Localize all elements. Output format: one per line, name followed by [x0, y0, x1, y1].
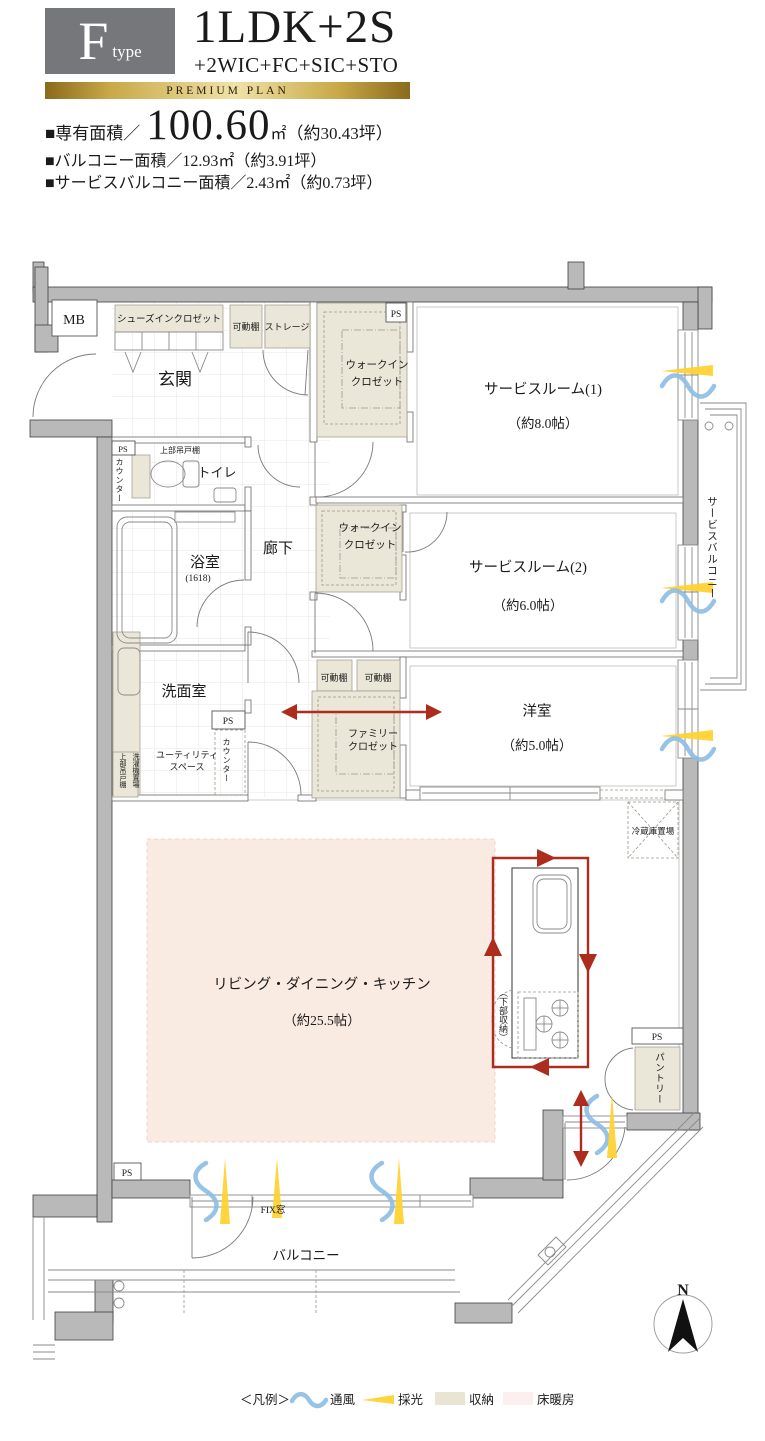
fridge-place-label: 冷蔵庫置場 [632, 826, 675, 836]
utility-space-label: スペース [170, 762, 205, 772]
pantry-door-upper [605, 1048, 633, 1079]
walk-in-closet-1-label: クロゼット [351, 376, 404, 388]
corridor-label: 廊下 [263, 540, 293, 557]
walk-in-closet-2-label: クロゼット [344, 539, 397, 551]
washroom-label: 洗面室 [161, 683, 206, 700]
service-room-2-outline [410, 513, 676, 648]
toilet-label: トイレ [197, 465, 236, 480]
storage-label: ストレージ [265, 322, 310, 332]
pantry-door-lower [605, 1079, 633, 1110]
legend-storage-label: 収納 [469, 1393, 494, 1407]
toilet-counter-area [132, 455, 150, 498]
north-compass: N [654, 1282, 712, 1353]
floor-heating-swatch [503, 1392, 533, 1405]
walk-in-closet-2-door [405, 512, 447, 552]
fix-window-label: FIX窓 [261, 1204, 286, 1216]
western-room-label: 洋室 [523, 703, 552, 720]
ventilation-icon [372, 1163, 393, 1220]
upper-cabinet-label: 上部吊戸棚 [160, 445, 200, 455]
north-arrow-icon [668, 1299, 698, 1352]
ventilation-icon [292, 1394, 326, 1406]
walk-in-closet-2-label: ウォークイン [339, 522, 402, 534]
balcony-label: バルコニー [272, 1248, 339, 1263]
ps-label: PS [122, 1169, 133, 1179]
western-room-outline [410, 666, 676, 786]
counter-label-wash: カウンター [221, 738, 232, 783]
bath-floor [112, 511, 245, 645]
western-room-size: （約5.0帖） [502, 738, 573, 753]
upper-cabinet-label-wash: 上部吊戸棚 [118, 753, 128, 788]
ps-label: PS [118, 444, 128, 454]
service-room-1-size: （約8.0帖） [508, 416, 579, 431]
washer-place-label: 洗濯機置場 [131, 753, 141, 788]
service-balcony-label: サービスバルコニー [704, 496, 719, 600]
family-closet-label: ファミリー [348, 729, 398, 740]
legend-title: ＜凡例＞ [240, 1393, 290, 1407]
legend-daylight-label: 採光 [398, 1393, 423, 1407]
under-storage-label: （下部収納） [497, 988, 510, 1042]
mb-label: MB [63, 313, 85, 328]
pantry-label: パントリー [651, 1052, 665, 1105]
bath-size-label: (1618) [185, 573, 210, 584]
floor-plan-drawing: MB PS PS PS PS PS [0, 0, 765, 1441]
ps-label: PS [652, 1033, 663, 1043]
service-room-1-label: サービスルーム(1) [484, 381, 602, 398]
movable-shelf-label: 可動棚 [232, 321, 259, 332]
utility-space-label: ユーティリティ [156, 750, 218, 760]
daylight-icon [394, 1158, 404, 1224]
floor-plan-page: F type 1LDK+2S +2WIC+FC+SIC+STO PREMIUM … [0, 0, 765, 1441]
balcony-hatch [538, 1237, 566, 1265]
ventilation-icon [196, 1163, 217, 1220]
movable-shelf-a-label: 可動棚 [320, 672, 347, 683]
entrance-door [33, 354, 96, 417]
entrance-label: 玄関 [158, 370, 192, 389]
service-room-2-size: （約6.0帖） [493, 598, 564, 613]
movable-shelf-b-label: 可動棚 [364, 672, 391, 683]
ldk-size-label: （約25.5帖） [283, 1013, 361, 1028]
legend: ＜凡例＞ 通風 採光 収納 床暖房 [240, 1392, 575, 1407]
daylight-icon [220, 1158, 230, 1224]
legend-ventilation-label: 通風 [330, 1393, 356, 1407]
legend-floor-heating-label: 床暖房 [537, 1392, 575, 1407]
service-room-2-label: サービスルーム(2) [469, 559, 587, 576]
daylight-icon [362, 1395, 394, 1404]
walk-in-closet-1-label: ウォークイン [346, 359, 409, 371]
shoes-in-closet-label: シューズインクロゼット [117, 313, 221, 325]
family-closet-label: クロゼット [348, 741, 398, 753]
ldk-label: リビング・ダイニング・キッチン [213, 976, 431, 993]
ps-label: PS [223, 717, 234, 727]
ps-label: PS [391, 310, 402, 320]
service-room-1-outline [417, 307, 678, 495]
north-label: N [677, 1282, 689, 1299]
counter-label-toilet: カウンター [114, 458, 125, 503]
bath-label: 浴室 [190, 554, 220, 571]
storage-swatch [435, 1392, 465, 1405]
